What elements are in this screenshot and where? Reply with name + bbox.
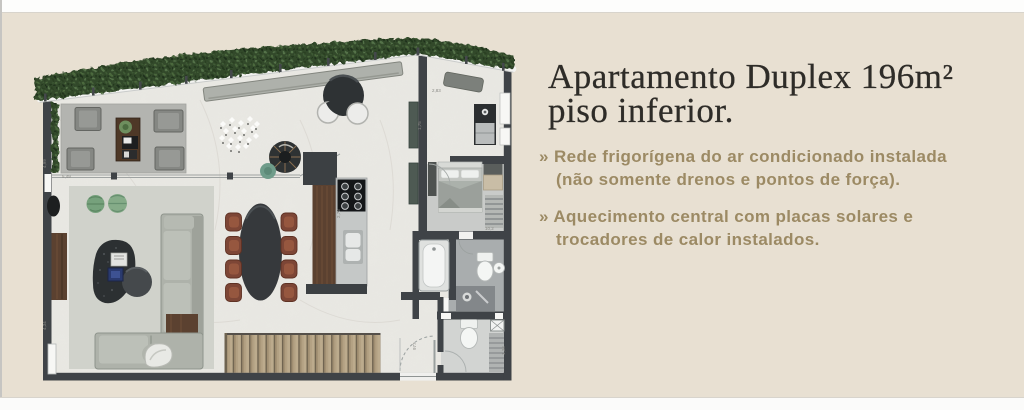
svg-text:4,34: 4,34	[42, 321, 47, 330]
svg-text:10,2: 10,2	[485, 226, 494, 231]
svg-text:1,75: 1,75	[417, 121, 422, 130]
svg-text:977: 977	[412, 342, 417, 350]
svg-text:2,83: 2,83	[432, 88, 441, 93]
svg-text:5,49: 5,49	[62, 174, 71, 179]
svg-text:4,99: 4,99	[42, 159, 47, 168]
svg-text:2,73: 2,73	[336, 209, 341, 218]
svg-text:1,38: 1,38	[501, 346, 506, 355]
